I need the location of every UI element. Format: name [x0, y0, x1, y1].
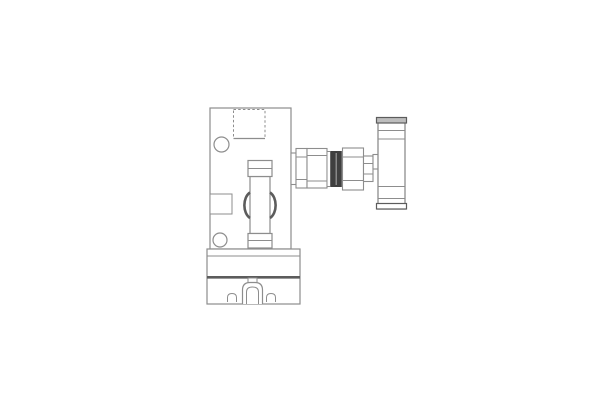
union-spacer: [327, 152, 331, 187]
lower-bolt-hole: [213, 233, 227, 247]
handle-body: [378, 118, 405, 209]
drawing-canvas: [0, 0, 600, 400]
assembly-drawing: [0, 0, 600, 400]
handle-bottom-cap: [377, 204, 407, 210]
gland-nut: [343, 148, 364, 190]
union-washer: [291, 153, 296, 185]
handle-top-cap: [377, 118, 407, 124]
upper-bolt-hole: [214, 137, 229, 152]
clamp-foot-outer: [243, 283, 263, 305]
union-body: [307, 149, 327, 189]
side-port-block: [210, 194, 232, 214]
union-nut: [296, 149, 307, 189]
valve-stem: [364, 156, 374, 182]
spindle-body: [250, 177, 270, 234]
clamp-foot-tab: [248, 278, 257, 283]
